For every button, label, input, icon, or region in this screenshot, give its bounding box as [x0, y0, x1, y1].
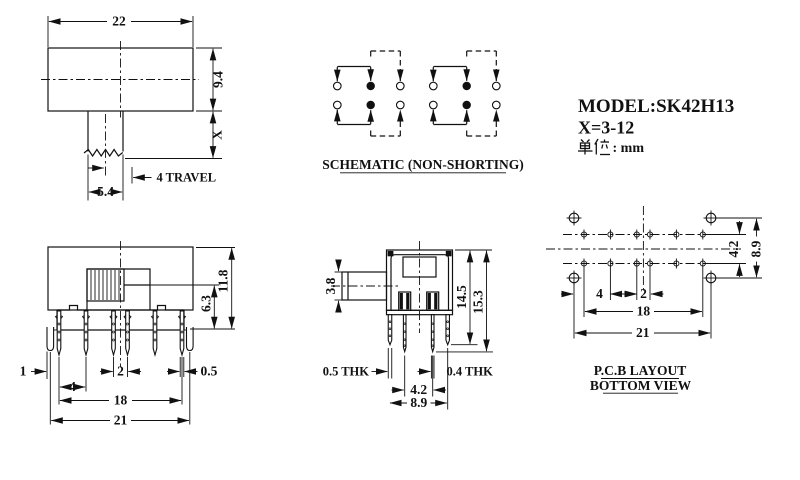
dim-span-outer: 21 [114, 413, 128, 428]
model-number: MODEL:SK42H13 [578, 96, 734, 117]
dim-body-height: 9.4 [211, 71, 226, 88]
dim-thk-right: 0.4 THK [447, 365, 494, 379]
dim-thk-left: 0.5 THK [323, 365, 370, 379]
dim-hole-gap: 8.9 [749, 240, 764, 257]
dim-height-inner: 14.5 [454, 285, 469, 309]
dim-travel: 4 TRAVEL [157, 171, 217, 185]
pcb-dimensions: 4.2 8.9 4 2 18 21 [561, 218, 764, 340]
dim-total-height: 11.8 [216, 269, 231, 292]
pcb-mount-holes [567, 211, 719, 286]
front-view: 11.8 6.3 1 0.5 2 4 18 [20, 241, 235, 428]
dim-pin-span: 8.9 [410, 395, 427, 410]
technical-drawing-page: 22 9.4 X 4 TRAVEL 5.4 SCHEMATIC (NON-SH [0, 0, 800, 480]
front-view-outline [48, 241, 193, 367]
side-view-pins [388, 315, 449, 352]
pcb-label-line1: P.C.B LAYOUT [594, 363, 686, 378]
dim-pitch-a: 4 [596, 286, 603, 301]
pcb-centerlines [546, 206, 741, 292]
dim-span-inner: 18 [114, 393, 128, 408]
dim-hook-width: 1 [20, 364, 27, 379]
dim-stem-width: 5.4 [97, 184, 114, 199]
dim-pitch-b: 2 [640, 286, 647, 301]
dim-pitch-a: 4 [69, 379, 76, 394]
top-view-dimensions: 22 9.4 X 4 TRAVEL 5.4 [48, 14, 226, 201]
top-view: 22 9.4 X 4 TRAVEL 5.4 [41, 14, 226, 201]
dim-stem-length: X [210, 130, 225, 140]
dim-body-width: 22 [112, 14, 126, 29]
top-view-outline [41, 41, 199, 176]
dim-height-outer: 15.3 [471, 290, 486, 314]
dim-pitch-b: 2 [117, 364, 124, 379]
knob-ribs [91, 270, 119, 300]
pcb-view: 4.2 8.9 4 2 18 21 P.C.B LAYO [546, 206, 764, 393]
dim-knob-height: 6.3 [199, 295, 214, 312]
schematic-view: SCHEMATIC (NON-SHORTING) [322, 51, 523, 173]
unit-value: : mm [613, 141, 645, 156]
dim-span-outer: 21 [636, 325, 650, 340]
pcb-label-line2: BOTTOM VIEW [590, 378, 692, 393]
x-range: X=3-12 [578, 118, 634, 138]
dim-row-gap: 4.2 [726, 240, 741, 257]
title-block: MODEL:SK42H13 X=3-12 : mm [578, 96, 734, 156]
drawing-canvas: 22 9.4 X 4 TRAVEL 5.4 SCHEMATIC (NON-SH [0, 0, 800, 480]
break-line [84, 150, 123, 157]
schematic-pole-2 [430, 51, 501, 136]
side-view: 3.8 14.5 15.3 0.5 THK 0.4 THK 4.2 8.9 [323, 241, 493, 410]
schematic-pole-1 [334, 51, 405, 136]
dim-span-inner: 18 [637, 304, 651, 319]
unit-label-cjk [578, 139, 610, 155]
dim-pin-width: 0.5 [201, 364, 218, 379]
schematic-label: SCHEMATIC (NON-SHORTING) [322, 157, 523, 172]
dim-knob-height: 3.8 [323, 277, 338, 294]
